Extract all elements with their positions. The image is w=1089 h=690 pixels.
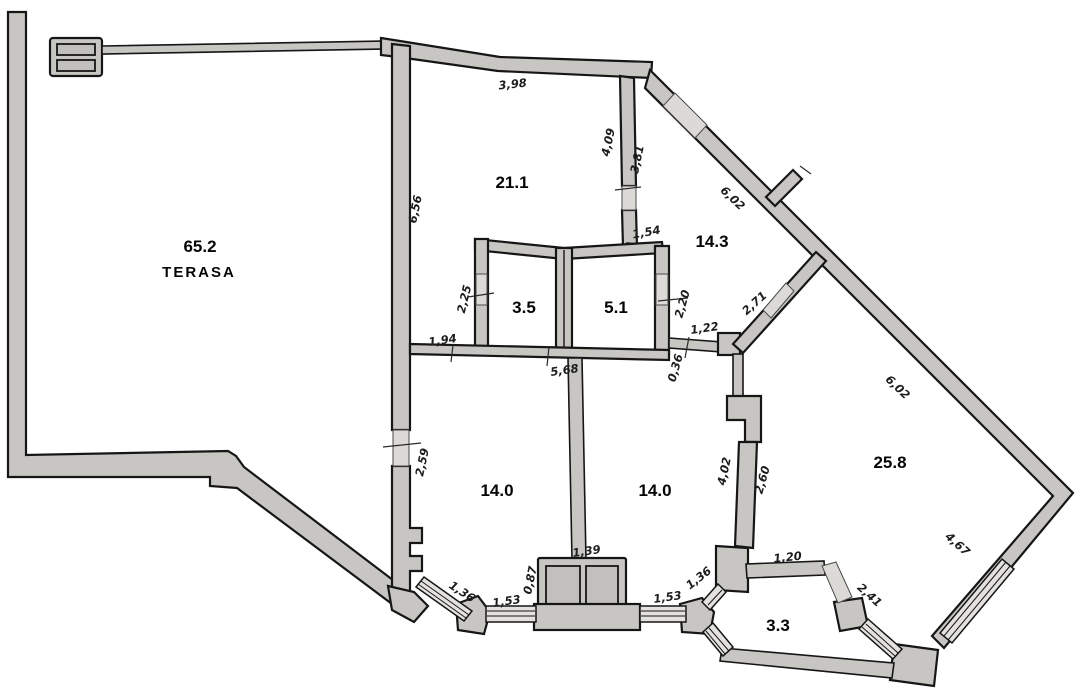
balcony-walls (720, 648, 894, 678)
room-label-3-5: 3.5 (512, 298, 536, 317)
wall-4-02-block (727, 396, 761, 442)
balcony-bottom-wall (720, 648, 894, 678)
terrace-railing (102, 41, 385, 54)
top-wall (381, 38, 652, 78)
dim-1-20: 1,20 (773, 549, 803, 566)
terrace-wall (8, 12, 406, 607)
window-lower-right (940, 559, 1014, 643)
floor-plan: 65.2 TERASA 21.1 14.3 3.5 5.1 14.0 14.0 … (0, 0, 1089, 690)
room-label-5-1: 5.1 (604, 298, 628, 317)
room-label-3-3: 3.3 (766, 616, 790, 635)
room-label-terasa-area: 65.2 (183, 237, 216, 256)
window-diag-right (702, 584, 726, 610)
window-balcony-right (859, 619, 902, 659)
room-label-14-3: 14.3 (695, 232, 728, 251)
door-left-wall (393, 430, 409, 466)
dim-3-98: 3,98 (498, 76, 528, 93)
chimney-flue-left (546, 566, 580, 604)
balcony-junction-block (716, 546, 748, 592)
wall-4-02-lower (735, 442, 757, 548)
chimney-base (534, 604, 640, 630)
dim-2-25: 2,25 (454, 284, 474, 315)
dim-2-59: 2,59 (412, 447, 432, 478)
door-wc (476, 274, 487, 305)
bottom-wall-row (410, 344, 669, 360)
room-label-terasa-name: TERASA (162, 264, 236, 281)
chimney (534, 558, 640, 630)
room-label-14-0-left: 14.0 (480, 481, 513, 500)
wall-4-02-upper (733, 354, 743, 398)
door-balcony-2-41 (822, 562, 852, 603)
dim-1-53-right: 1,53 (652, 588, 682, 606)
diagonal-wall (645, 70, 1073, 648)
dim-1-36-right: 1,36 (683, 564, 714, 593)
dim-4-09: 4,09 (598, 127, 618, 159)
terrace-pillar-pane (57, 44, 95, 55)
room-label-25-8: 25.8 (873, 453, 906, 472)
door-diagonal (663, 93, 707, 138)
chimney-flue-right (586, 566, 618, 604)
diagonal-stub (766, 170, 802, 206)
interior-walls (410, 76, 826, 592)
divider-14-14 (568, 358, 586, 560)
window-balcony-left (703, 623, 733, 656)
dim-4-67: 4,67 (942, 529, 973, 559)
terrace-pillar-pane (57, 60, 95, 71)
door-divider (622, 186, 636, 210)
dim-1-22: 1,22 (689, 319, 719, 337)
wall-1-22 (669, 338, 722, 352)
floor-plan-drawing: 65.2 TERASA 21.1 14.3 3.5 5.1 14.0 14.0 … (0, 0, 1089, 690)
left-wall-upper (392, 44, 410, 430)
window-right (640, 606, 686, 622)
dim-4-02: 4,02 (714, 456, 734, 488)
room-label-14-0-right: 14.0 (638, 481, 671, 500)
dim-6-02-right: 6,02 (883, 372, 913, 402)
room-label-21-1: 21.1 (495, 173, 528, 192)
dim-2-20: 2,20 (672, 288, 693, 319)
